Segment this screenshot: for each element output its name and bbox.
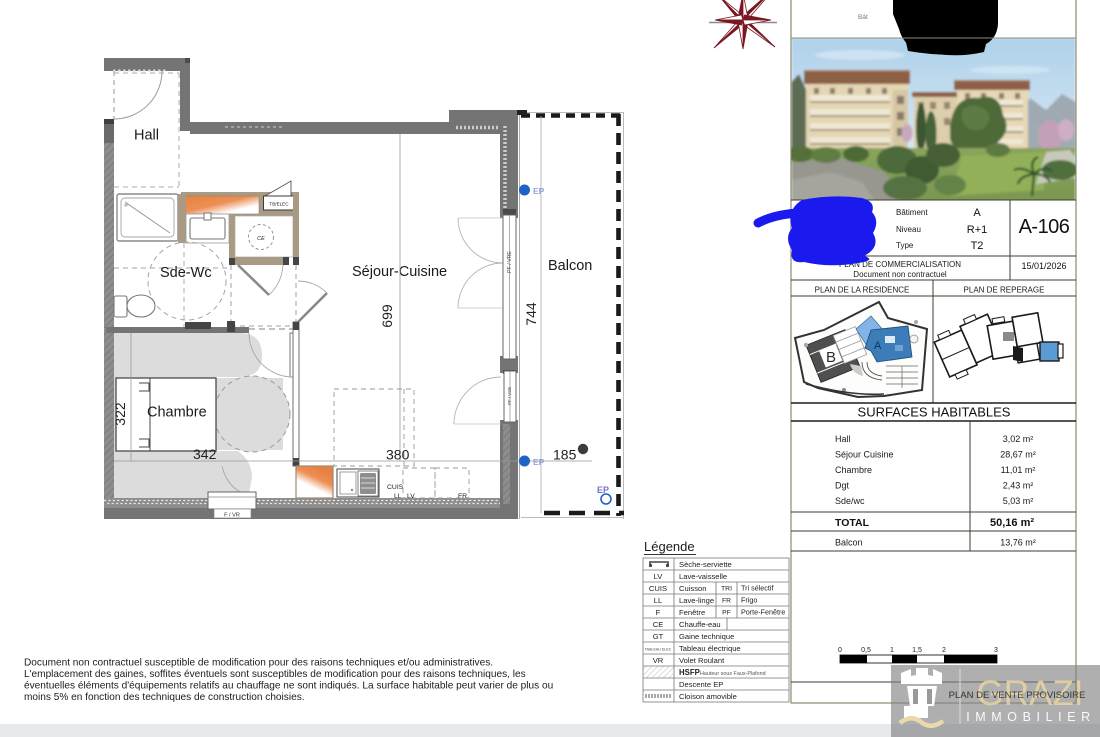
svg-text:Hall: Hall: [835, 434, 851, 444]
svg-text:Document non contractuel: Document non contractuel: [853, 270, 947, 279]
svg-text:PLAN DE REPERAGE: PLAN DE REPERAGE: [964, 286, 1045, 295]
svg-text:CE: CE: [653, 620, 664, 629]
svg-text:3: 3: [994, 647, 998, 654]
svg-text:FR: FR: [458, 493, 467, 500]
svg-text:Porte-Fenêtre: Porte-Fenêtre: [741, 608, 785, 617]
svg-text:Lave-linge: Lave-linge: [679, 596, 714, 605]
svg-text:PF: PF: [722, 610, 731, 617]
svg-text:15/01/2026: 15/01/2026: [1021, 261, 1066, 271]
svg-text:Balcon: Balcon: [835, 538, 863, 548]
svg-text:Séjour Cuisine: Séjour Cuisine: [835, 450, 894, 460]
svg-text:Dgt: Dgt: [835, 481, 850, 491]
svg-text:Document non contractuel susce: Document non contractuel susceptible de …: [24, 658, 493, 669]
svg-text:50,16 m²: 50,16 m²: [990, 517, 1034, 529]
svg-text:Volet Roulant: Volet Roulant: [679, 656, 725, 665]
svg-text:322: 322: [112, 402, 128, 426]
svg-text:R+1: R+1: [967, 224, 988, 236]
svg-text:Balcon: Balcon: [548, 258, 592, 274]
svg-text:Sde-Wc: Sde-Wc: [160, 265, 212, 281]
svg-text:3,02 m²: 3,02 m²: [1003, 434, 1034, 444]
svg-text:Type: Type: [896, 241, 914, 250]
svg-text:Niveau: Niveau: [896, 225, 921, 234]
svg-text:PF / VSE: PF / VSE: [507, 387, 512, 405]
svg-text:Bât: Bât: [858, 14, 868, 21]
svg-text:GT: GT: [653, 632, 664, 641]
svg-text:5,03 m²: 5,03 m²: [1003, 496, 1034, 506]
svg-text:Séjour-Cuisine: Séjour-Cuisine: [352, 264, 447, 280]
svg-text:TABLEAU ELEC: TABLEAU ELEC: [645, 648, 672, 652]
svg-text:LL: LL: [394, 493, 402, 500]
svg-text:185: 185: [553, 447, 577, 463]
svg-text:A: A: [874, 340, 882, 352]
svg-text:EP: EP: [597, 485, 609, 495]
svg-text:1,5: 1,5: [912, 647, 922, 654]
svg-text:SURFACES HABITABLES: SURFACES HABITABLES: [858, 405, 1011, 420]
svg-text:11,01 m²: 11,01 m²: [1001, 465, 1036, 475]
svg-text:28,67 m²: 28,67 m²: [1000, 450, 1036, 460]
svg-text:L'emplacement des gaines, soff: L'emplacement des gaines, soffites évent…: [24, 669, 526, 680]
svg-text:744: 744: [523, 302, 539, 326]
svg-text:moins 5% en fonction des techn: moins 5% en fonction des techniques de c…: [24, 692, 305, 703]
svg-text:13,76 m²: 13,76 m²: [1000, 538, 1036, 548]
svg-text:Cloison amovible: Cloison amovible: [679, 692, 737, 701]
svg-text:1: 1: [890, 647, 894, 654]
svg-text:Légende: Légende: [644, 539, 695, 554]
svg-text:LV: LV: [654, 572, 664, 581]
svg-text:342: 342: [193, 446, 217, 462]
svg-text:Gaine technique: Gaine technique: [679, 632, 734, 641]
svg-text:IMMOBILIER: IMMOBILIER: [966, 710, 1096, 724]
svg-text:PF / VRE: PF / VRE: [507, 251, 513, 273]
svg-text:380: 380: [386, 447, 410, 463]
svg-text:Chambre: Chambre: [147, 405, 207, 421]
svg-text:Cuisson: Cuisson: [679, 584, 706, 593]
svg-text:Sèche-serviette: Sèche-serviette: [679, 560, 732, 569]
svg-text:CUIS: CUIS: [649, 584, 667, 593]
svg-text:A: A: [973, 207, 981, 219]
svg-text:0: 0: [838, 647, 842, 654]
svg-text:PLAN DE VENTE PROVISOIRE: PLAN DE VENTE PROVISOIRE: [949, 690, 1086, 701]
svg-text:EP: EP: [533, 457, 545, 467]
svg-text:Frigo: Frigo: [741, 596, 757, 605]
svg-text:TRI: TRI: [721, 586, 732, 593]
svg-text:A-106: A-106: [1019, 216, 1070, 238]
svg-text:Lave-vaisselle: Lave-vaisselle: [679, 572, 727, 581]
svg-text:Descente EP: Descente EP: [679, 680, 723, 689]
svg-text:EP: EP: [533, 186, 545, 196]
svg-text:Bâtiment: Bâtiment: [896, 208, 928, 217]
svg-text:T2: T2: [971, 240, 984, 252]
svg-text:Chauffe-eau: Chauffe-eau: [679, 620, 721, 629]
svg-text:CUIS: CUIS: [387, 484, 404, 491]
svg-text:Hall: Hall: [134, 128, 159, 144]
svg-text:éventuelles éléments d'équipem: éventuelles éléments d'équipements relat…: [24, 681, 553, 692]
svg-text:VR: VR: [653, 656, 664, 665]
svg-text:F: F: [656, 608, 661, 617]
svg-text:Tableau électrique: Tableau électrique: [679, 644, 741, 653]
svg-text:HSFP: HSFP: [679, 668, 700, 677]
svg-text:Hauteur sous Faux-Plafond: Hauteur sous Faux-Plafond: [700, 671, 766, 677]
svg-text:PLAN DE LA RESIDENCE: PLAN DE LA RESIDENCE: [815, 286, 910, 295]
svg-text:Chambre: Chambre: [835, 465, 872, 475]
svg-text:LV: LV: [407, 493, 415, 500]
svg-text:2: 2: [942, 647, 946, 654]
svg-text:LL: LL: [654, 596, 662, 605]
svg-text:Sde/wc: Sde/wc: [835, 496, 865, 506]
svg-text:TOTAL: TOTAL: [835, 517, 870, 529]
svg-text:CE: CE: [257, 236, 265, 242]
svg-text:2,43 m²: 2,43 m²: [1003, 481, 1034, 491]
svg-text:B: B: [826, 349, 836, 366]
svg-text:Fenêtre: Fenêtre: [679, 608, 705, 617]
svg-text:F / VR: F / VR: [224, 513, 240, 519]
svg-text:TB/ELEC: TB/ELEC: [269, 202, 289, 207]
svg-text:699: 699: [379, 304, 395, 328]
svg-text:0,5: 0,5: [861, 647, 871, 654]
svg-text:Tri sélectif: Tri sélectif: [741, 584, 773, 593]
svg-text:FR: FR: [722, 598, 731, 605]
